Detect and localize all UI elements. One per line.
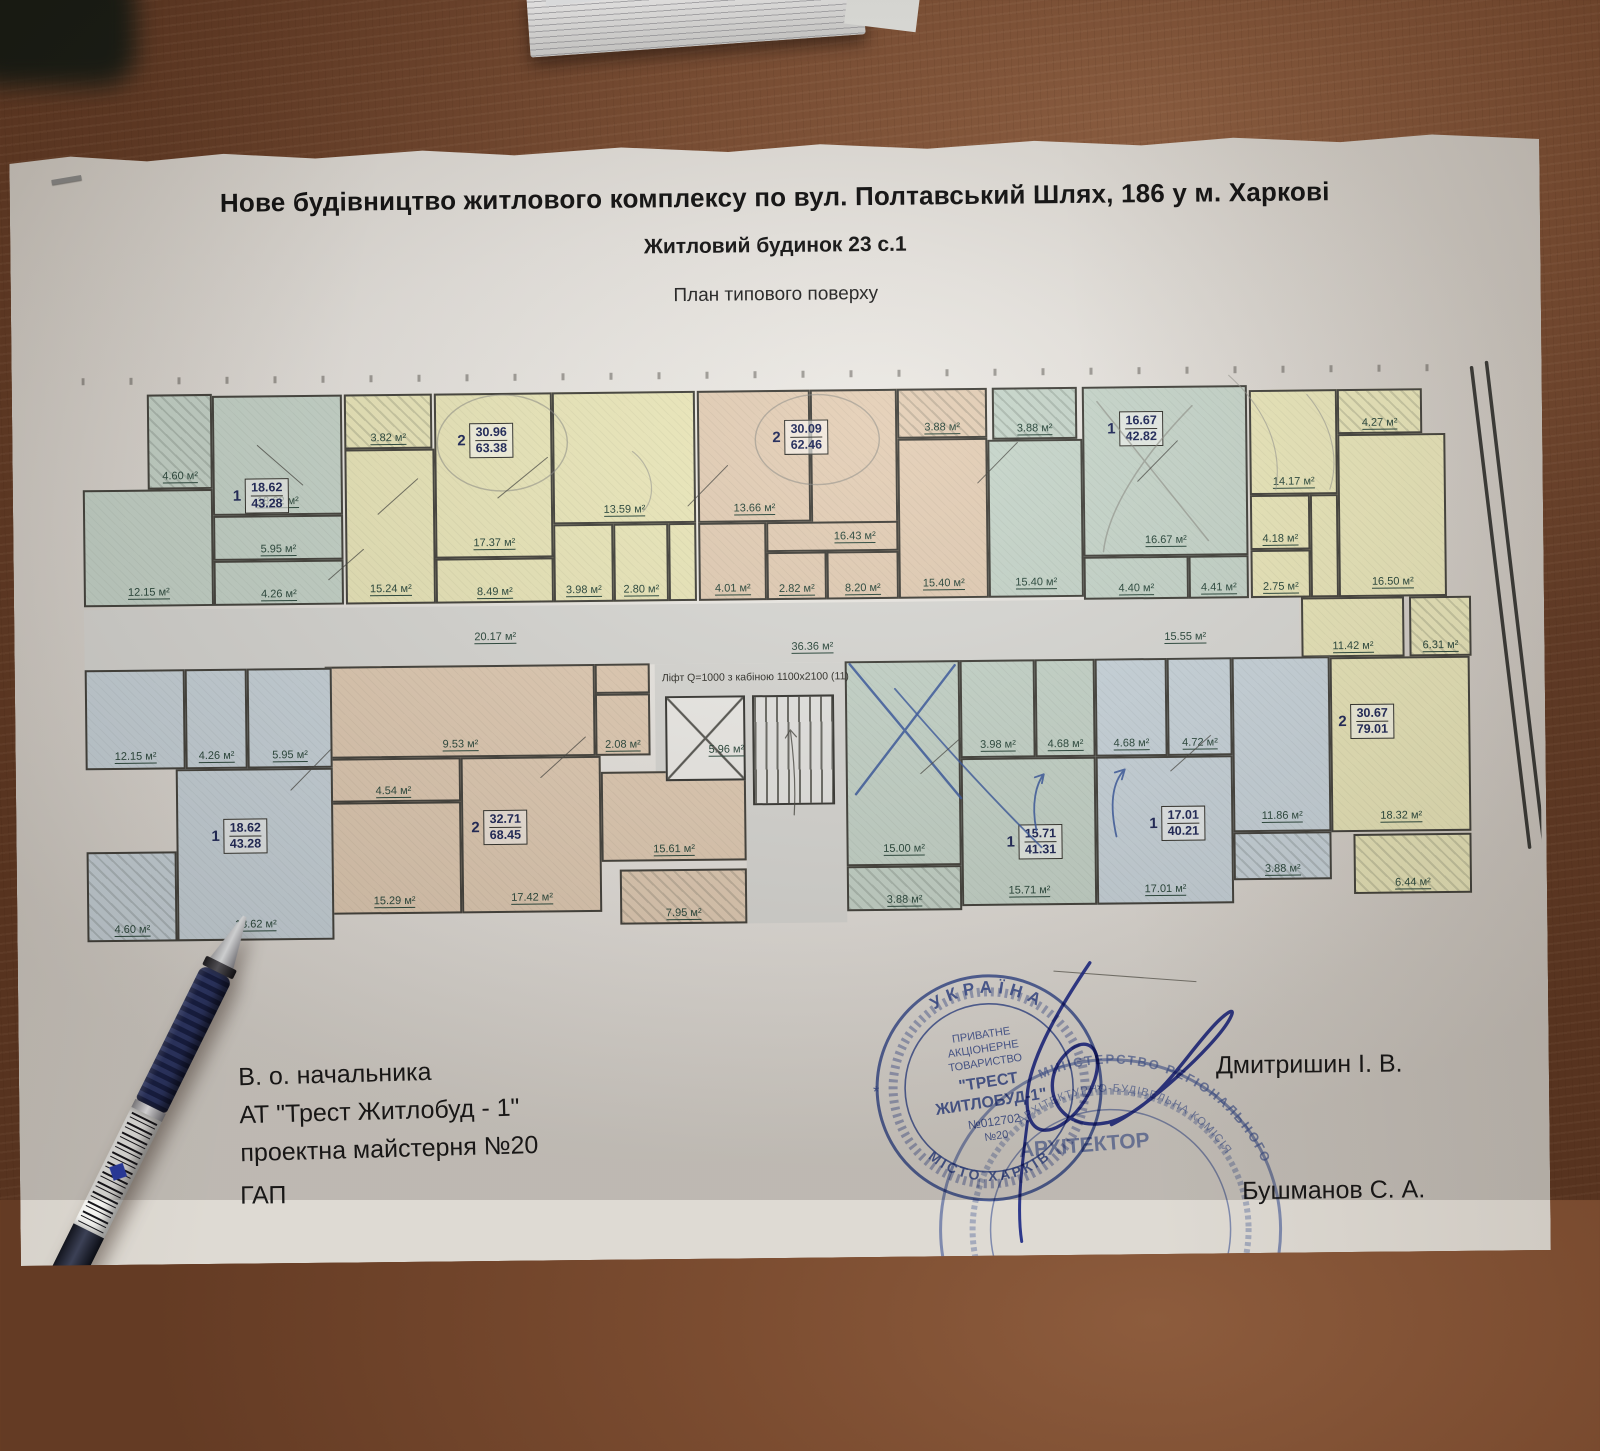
room: 15.40 м² xyxy=(897,438,989,599)
apartment-rooms-count: 2 xyxy=(471,819,480,836)
apartment-living-area: 18.62 xyxy=(230,820,261,836)
pen-barcode-sticker xyxy=(74,1107,162,1239)
room: 4.54 м² xyxy=(326,757,461,802)
apartment-total-area: 42.82 xyxy=(1126,429,1157,444)
apartment-total-area: 43.28 xyxy=(230,836,261,851)
room-area-label: 16.43 м² xyxy=(834,530,876,543)
room: 15.24 м² xyxy=(344,449,436,605)
room-area-label: 14.17 м² xyxy=(1273,475,1315,488)
room-area-label: 6.44 м² xyxy=(1395,876,1431,889)
room-area-label: 2.82 м² xyxy=(779,583,815,596)
room-area-label: 11.86 м² xyxy=(1262,810,1303,823)
room: 5.95 м² xyxy=(213,515,343,561)
room: 4.68 м² xyxy=(1035,659,1096,758)
room-area-label: 15.29 м² xyxy=(374,895,416,908)
room: 18.32 м² xyxy=(1330,656,1472,832)
apartment-total-area: 43.28 xyxy=(251,496,282,511)
room: 4.18 м² xyxy=(1250,494,1311,550)
room-area-label: 4.18 м² xyxy=(1262,533,1298,546)
room-area-label: 3.88 м² xyxy=(1265,863,1301,876)
room-area-label: 9.53 м² xyxy=(443,739,479,752)
room: 2.75 м² xyxy=(1250,549,1310,598)
room-area-label: 4.01 м² xyxy=(715,582,751,595)
apartment-rooms-count: 1 xyxy=(1006,834,1015,851)
room-area-label: 17.42 м² xyxy=(511,891,553,904)
floor-plan: Ліфт Q=1000 з кабіною 1100х2100 (11) xyxy=(76,338,1492,953)
room: 4.40 м² xyxy=(1084,556,1189,600)
room-area-label: 6.31 м² xyxy=(1423,639,1459,652)
room xyxy=(1310,494,1339,597)
apartment-rooms-count: 2 xyxy=(1338,713,1347,730)
apartment-living-area: 30.09 xyxy=(790,422,821,438)
room: 5.95 м² xyxy=(247,668,333,769)
apartment-rooms-count: 1 xyxy=(211,828,220,845)
apartment-total-area: 62.46 xyxy=(791,438,822,453)
apartment-rooms-count: 1 xyxy=(1107,420,1116,437)
room-area-label: 17.01 м² xyxy=(1145,883,1187,896)
room xyxy=(665,695,746,781)
room-area-label: 4.26 м² xyxy=(261,588,297,601)
room: 4.01 м² xyxy=(698,522,767,601)
room-area-label: 3.88 м² xyxy=(887,894,923,907)
room: 3.88 м² xyxy=(897,388,988,439)
room xyxy=(595,663,650,694)
room-area-label: 4.40 м² xyxy=(1118,583,1154,596)
room: 9.53 м² xyxy=(325,664,596,759)
room: 15.61 м² xyxy=(601,770,747,862)
room: 3.98 м² xyxy=(960,659,1036,758)
apartment-tag: 1 17.01 40.21 xyxy=(1149,806,1205,842)
room: 13.59 м² xyxy=(552,391,696,524)
room-area-label: 15.71 м² xyxy=(1009,884,1051,897)
room-area-label: 3.98 м² xyxy=(566,584,602,597)
page-title: Нове будівництво житлового комплексу по … xyxy=(110,175,1440,220)
apartment-tag: 1 16.67 42.82 xyxy=(1107,411,1163,447)
room-area-label: 13.59 м² xyxy=(604,503,646,516)
pen-barrel-end xyxy=(36,1223,104,1314)
room: 2.80 м² xyxy=(613,523,669,602)
apartment-rooms-count: 1 xyxy=(233,488,242,505)
room: 12.15 м² xyxy=(85,669,186,770)
room: 15.29 м² xyxy=(326,801,462,914)
room: 17.37 м² xyxy=(434,392,554,558)
room: 8.49 м² xyxy=(436,557,554,603)
apartment-living-area: 16.67 xyxy=(1125,413,1156,429)
room-area-label: 12.15 м² xyxy=(128,587,170,600)
room-area-label: 4.26 м² xyxy=(199,750,235,763)
room-area-label: 17.37 м² xyxy=(473,536,515,549)
apartment-total-area: 40.21 xyxy=(1168,824,1199,839)
room-area-label: 15.40 м² xyxy=(1015,576,1057,589)
room-area-label: 12.15 м² xyxy=(115,751,157,764)
room: 3.88 м² xyxy=(992,387,1078,440)
room: 4.60 м² xyxy=(87,851,178,942)
room-area-label: 15.00 м² xyxy=(883,842,925,855)
room-area-label: 2.75 м² xyxy=(1263,581,1299,594)
room-area-label: 15.61 м² xyxy=(653,842,695,855)
room-area-label: 4.27 м² xyxy=(1362,417,1398,430)
page-subtitle: Житловий будинок 23 с.1 xyxy=(110,227,1440,265)
apartment-total-area: 79.01 xyxy=(1357,722,1388,737)
apartment-living-area: 30.96 xyxy=(475,425,506,441)
document-paper: Нове будівництво житлового комплексу по … xyxy=(9,130,1551,1266)
room: 4.27 м² xyxy=(1337,388,1422,434)
apartment-total-area: 68.45 xyxy=(490,828,521,843)
room: 8.20 м² xyxy=(826,551,898,600)
architect-stamp: МІНІСТЕРСТВО РЕГІОНАЛЬНОГО АРХІТЕКТУРНО-… xyxy=(898,1017,1322,1441)
room-area-label: 8.49 м² xyxy=(477,586,513,599)
room-area-label: 16.50 м² xyxy=(1372,575,1414,588)
room: 6.31 м² xyxy=(1409,596,1472,657)
room: 4.26 м² xyxy=(214,560,344,606)
room: 4.26 м² xyxy=(185,669,248,770)
room: 15.40 м² xyxy=(987,439,1084,598)
room-area-label: 3.98 м² xyxy=(980,739,1016,752)
room: 3.88 м² xyxy=(847,865,962,911)
room-area-label: 15.40 м² xyxy=(923,577,965,590)
pen-grip xyxy=(135,964,232,1113)
corridor-area-label: 15.55 м² xyxy=(1164,631,1206,644)
room-area-label: 5.95 м² xyxy=(272,749,308,762)
footer-gap-label: ГАП xyxy=(240,1181,287,1210)
room-area-label: 4.41 м² xyxy=(1201,582,1237,595)
room: 3.88 м² xyxy=(1233,831,1331,880)
room-area-label: 4.68 м² xyxy=(1114,737,1150,750)
apartment-living-area: 15.71 xyxy=(1025,826,1056,842)
paper-stack xyxy=(526,0,866,58)
room: 4.41 м² xyxy=(1189,555,1249,599)
svg-text:*: * xyxy=(873,1084,879,1101)
staple-mark xyxy=(51,175,81,185)
apartment-total-area: 63.38 xyxy=(476,441,507,456)
apartment-living-area: 30.67 xyxy=(1356,706,1387,722)
room-area-label: 13.66 м² xyxy=(734,502,776,515)
corridor-area-label: 20.17 м² xyxy=(474,631,516,644)
room: 4.72 м² xyxy=(1167,657,1233,756)
apartment-tag: 1 15.71 41.31 xyxy=(1006,824,1062,860)
room-area-label: 3.88 м² xyxy=(1017,422,1053,435)
room: 11.86 м² xyxy=(1232,656,1332,832)
apartment-rooms-count: 2 xyxy=(457,432,466,449)
room: 2.08 м² xyxy=(595,693,651,756)
room: 4.60 м² xyxy=(147,394,213,490)
room-area-label: 4.60 м² xyxy=(114,923,150,936)
room: 15.00 м² xyxy=(845,660,962,866)
room-area-label: 15.24 м² xyxy=(370,583,412,596)
room-area-label: 7.95 м² xyxy=(666,907,702,920)
corridor-area-label: 5.96 м² xyxy=(708,743,744,756)
apartment-living-area: 17.01 xyxy=(1168,808,1199,824)
apartment-rooms-count: 2 xyxy=(772,429,781,446)
room-area-label: 2.80 м² xyxy=(623,583,659,596)
room-area-label: 2.08 м² xyxy=(605,738,641,751)
room-area-label: 4.60 м² xyxy=(162,470,198,483)
footer-line-3: проектна майстерня №20 xyxy=(240,1126,539,1172)
room-area-label: 11.42 м² xyxy=(1332,640,1373,653)
apartment-tag: 1 18.62 43.28 xyxy=(211,818,267,854)
apartment-living-area: 18.62 xyxy=(251,480,282,496)
room: 3.82 м² xyxy=(344,394,433,450)
room-area-label: 8.20 м² xyxy=(845,582,881,595)
apartment-total-area: 41.31 xyxy=(1025,842,1056,857)
room: 18.62 м² xyxy=(176,768,335,942)
apartment-tag: 1 18.62 43.28 xyxy=(233,478,289,514)
room: 12.15 м² xyxy=(83,489,214,607)
room: 4.68 м² xyxy=(1095,658,1168,757)
apartment-tag: 2 30.96 63.38 xyxy=(457,423,513,459)
apartment-living-area: 32.71 xyxy=(490,812,521,828)
room: 16.50 м² xyxy=(1337,433,1447,597)
ballpoint-pen xyxy=(36,909,260,1315)
footer-left-block: В. о. начальника АТ "Трест Житлобуд - 1"… xyxy=(238,1050,539,1172)
apartment-tag: 2 30.09 62.46 xyxy=(772,419,828,455)
room xyxy=(668,523,697,601)
page-caption: План типового поверху xyxy=(111,277,1441,313)
room-area-label: 18.32 м² xyxy=(1380,809,1422,822)
apartment-rooms-count: 1 xyxy=(1149,815,1158,832)
room-area-label: 3.88 м² xyxy=(924,421,960,434)
room: 7.95 м² xyxy=(620,868,748,924)
dimension-ticks xyxy=(82,364,1470,386)
room: 2.82 м² xyxy=(766,552,826,601)
room: 3.98 м² xyxy=(553,524,614,603)
room: 13.66 м² xyxy=(697,390,811,523)
room: 14.17 м² xyxy=(1249,389,1338,495)
apartment-tag: 2 30.67 79.01 xyxy=(1338,704,1394,740)
room xyxy=(752,694,835,805)
corridor-area-label: 36.36 м² xyxy=(791,640,833,653)
apartment-tag: 2 32.71 68.45 xyxy=(471,810,527,846)
dark-desk-corner xyxy=(0,0,136,86)
room-area-label: 5.95 м² xyxy=(261,543,297,556)
room-area-label: 3.82 м² xyxy=(370,432,406,445)
room-area-label: 4.68 м² xyxy=(1048,738,1084,751)
room: 11.42 м² xyxy=(1301,596,1405,657)
room-area-label: 4.72 м² xyxy=(1182,737,1218,750)
room-area-label: 16.67 м² xyxy=(1145,534,1187,547)
room: 6.44 м² xyxy=(1353,833,1472,894)
room-area-label: 4.54 м² xyxy=(376,785,412,798)
room xyxy=(766,521,898,552)
